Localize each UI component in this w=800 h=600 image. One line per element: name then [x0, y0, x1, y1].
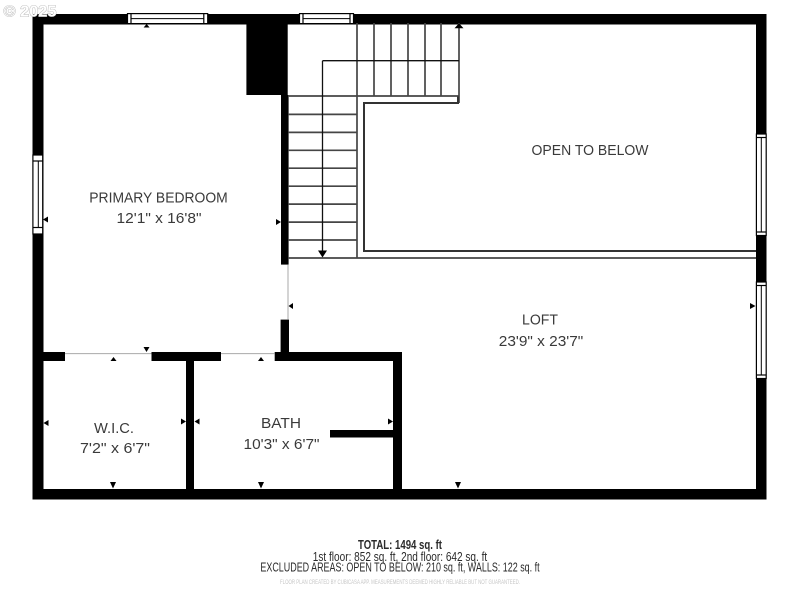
svg-text:© 2025: © 2025	[4, 4, 57, 21]
svg-text:PRIMARY BEDROOM: PRIMARY BEDROOM	[89, 191, 227, 207]
svg-text:12'1" x 16'8": 12'1" x 16'8"	[117, 211, 202, 227]
svg-text:7'2" x 6'7": 7'2" x 6'7"	[80, 441, 150, 457]
svg-text:FLOOR PLAN CREATED BY CUBICASA: FLOOR PLAN CREATED BY CUBICASA APP. MEAS…	[280, 580, 520, 586]
svg-text:EXCLUDED AREAS: OPEN TO BELOW:: EXCLUDED AREAS: OPEN TO BELOW: 210 sq. f…	[260, 559, 539, 574]
svg-text:23'9" x 23'7": 23'9" x 23'7"	[499, 334, 584, 350]
svg-text:10'3" x 6'7": 10'3" x 6'7"	[244, 437, 320, 453]
svg-text:LOFT: LOFT	[522, 313, 558, 329]
svg-text:OPEN TO BELOW: OPEN TO BELOW	[532, 143, 649, 159]
svg-text:BATH: BATH	[261, 416, 301, 432]
svg-text:W.I.C.: W.I.C.	[94, 421, 134, 437]
